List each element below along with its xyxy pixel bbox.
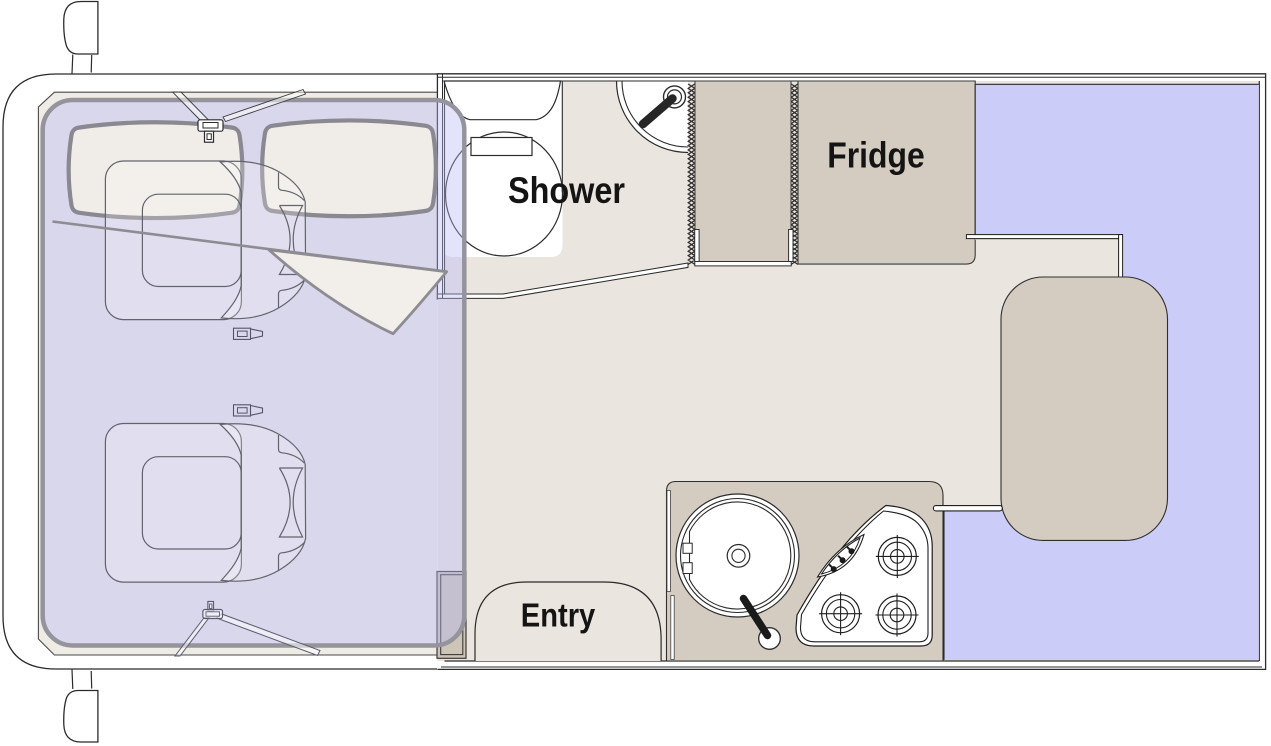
svg-text:Entry: Entry <box>521 597 596 634</box>
svg-text:Shower: Shower <box>508 170 625 211</box>
svg-text:Fridge: Fridge <box>827 135 925 176</box>
